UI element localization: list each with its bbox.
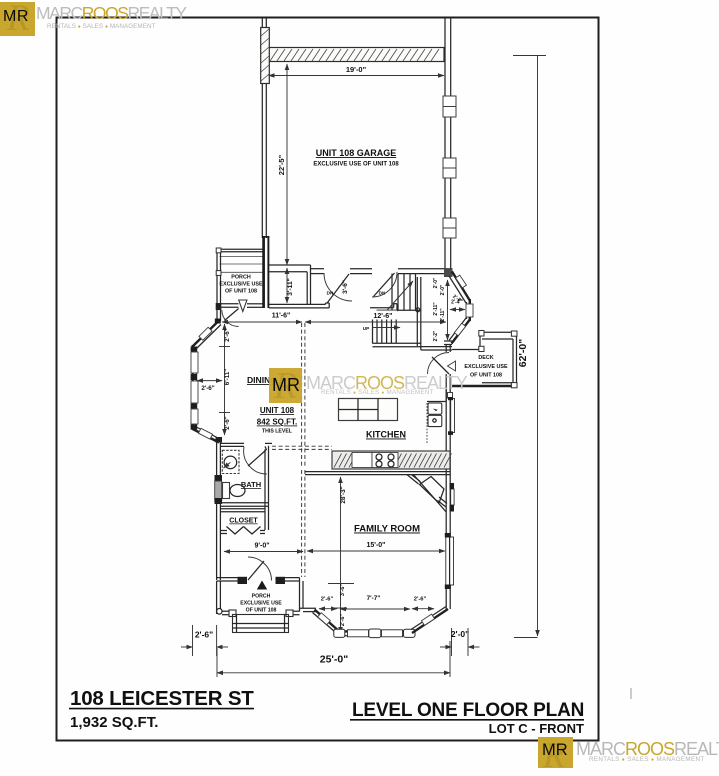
- svg-text:EXCLUSIVE USE: EXCLUSIVE USE: [240, 601, 282, 607]
- svg-text:22'-5": 22'-5": [277, 154, 286, 175]
- svg-text:28'-3": 28'-3": [340, 486, 347, 503]
- svg-text:EXCLUSIVE USE: EXCLUSIVE USE: [219, 282, 263, 288]
- svg-text:UNIT 108: UNIT 108: [260, 406, 295, 415]
- svg-text:2'-6": 2'-6": [321, 597, 334, 603]
- svg-text:2'-11": 2'-11": [433, 302, 439, 316]
- svg-text:2'-2": 2'-2": [433, 330, 439, 341]
- svg-text:12'-6": 12'-6": [374, 313, 393, 320]
- svg-text:THIS LEVEL: THIS LEVEL: [262, 429, 293, 435]
- svg-text:1,932 SQ.FT.: 1,932 SQ.FT.: [70, 714, 158, 731]
- svg-text:2'-6": 2'-6": [224, 416, 231, 429]
- svg-text:2'-6": 2'-6": [224, 328, 231, 341]
- svg-text:19'-0": 19'-0": [346, 65, 367, 74]
- svg-text:DN: DN: [327, 291, 334, 296]
- svg-text:2'-6": 2'-6": [340, 614, 346, 627]
- svg-text:UP: UP: [363, 326, 369, 331]
- svg-text:PORCH: PORCH: [252, 594, 271, 600]
- svg-text:2'-0": 2'-0": [451, 629, 469, 639]
- svg-text:UNIT 108 GARAGE: UNIT 108 GARAGE: [316, 148, 397, 158]
- svg-text:OF UNIT 108: OF UNIT 108: [246, 608, 277, 614]
- svg-text:CLOSET: CLOSET: [229, 518, 258, 525]
- svg-text:OF UNIT 108: OF UNIT 108: [470, 372, 502, 378]
- svg-text:842 SQ.FT.: 842 SQ.FT.: [257, 418, 297, 427]
- svg-text:2'-6": 2'-6": [414, 597, 427, 603]
- svg-text:EXCLUSIVE USE OF UNIT 108: EXCLUSIVE USE OF UNIT 108: [313, 162, 399, 168]
- svg-text:2'-6": 2'-6": [195, 630, 213, 640]
- svg-text:7'-7": 7'-7": [367, 595, 381, 602]
- svg-text:2'-0": 2'-0": [440, 284, 446, 295]
- svg-text:2'-0": 2'-0": [433, 277, 439, 288]
- svg-text:DN: DN: [379, 291, 386, 296]
- svg-text:3'-6": 3'-6": [340, 584, 346, 597]
- svg-text:EXCLUSIVE USE: EXCLUSIVE USE: [464, 364, 508, 370]
- svg-text:DECK: DECK: [478, 355, 493, 361]
- svg-text:2'-6": 2'-6": [201, 385, 214, 392]
- svg-text:25'-0": 25'-0": [320, 654, 349, 666]
- svg-text:OF UNIT 108: OF UNIT 108: [225, 289, 257, 295]
- svg-text:KITCHEN: KITCHEN: [366, 430, 406, 440]
- svg-text:PORCH: PORCH: [231, 275, 251, 281]
- svg-text:2'-11": 2'-11": [440, 308, 446, 322]
- svg-text:62'-0": 62'-0": [517, 339, 529, 368]
- svg-text:3'-11": 3'-11": [287, 278, 294, 296]
- svg-text:FAMILY ROOM: FAMILY ROOM: [354, 524, 420, 535]
- svg-text:108 LEICESTER ST: 108 LEICESTER ST: [70, 687, 254, 710]
- svg-text:2'-4": 2'-4": [451, 300, 462, 306]
- svg-text:9'-0": 9'-0": [254, 543, 269, 550]
- svg-text:15'-0": 15'-0": [367, 542, 386, 549]
- svg-text:3'-6": 3'-6": [342, 280, 349, 294]
- svg-text:6'-11": 6'-11": [224, 369, 231, 386]
- svg-text:LEVEL ONE FLOOR PLAN: LEVEL ONE FLOOR PLAN: [352, 700, 584, 721]
- svg-text:11'-6": 11'-6": [272, 313, 291, 320]
